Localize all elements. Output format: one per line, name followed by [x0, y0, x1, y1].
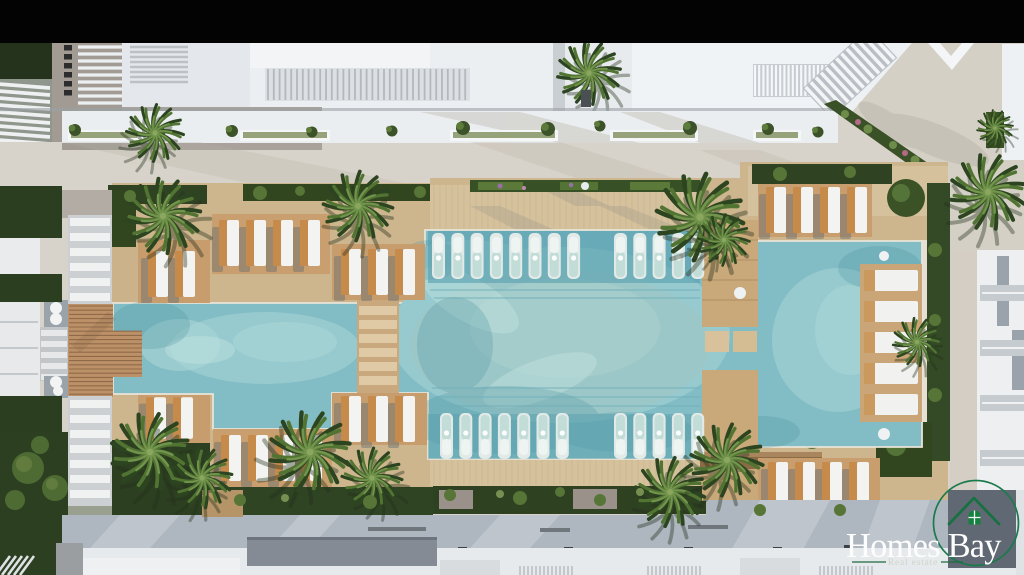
- svg-text:Real estate: Real estate: [888, 558, 938, 568]
